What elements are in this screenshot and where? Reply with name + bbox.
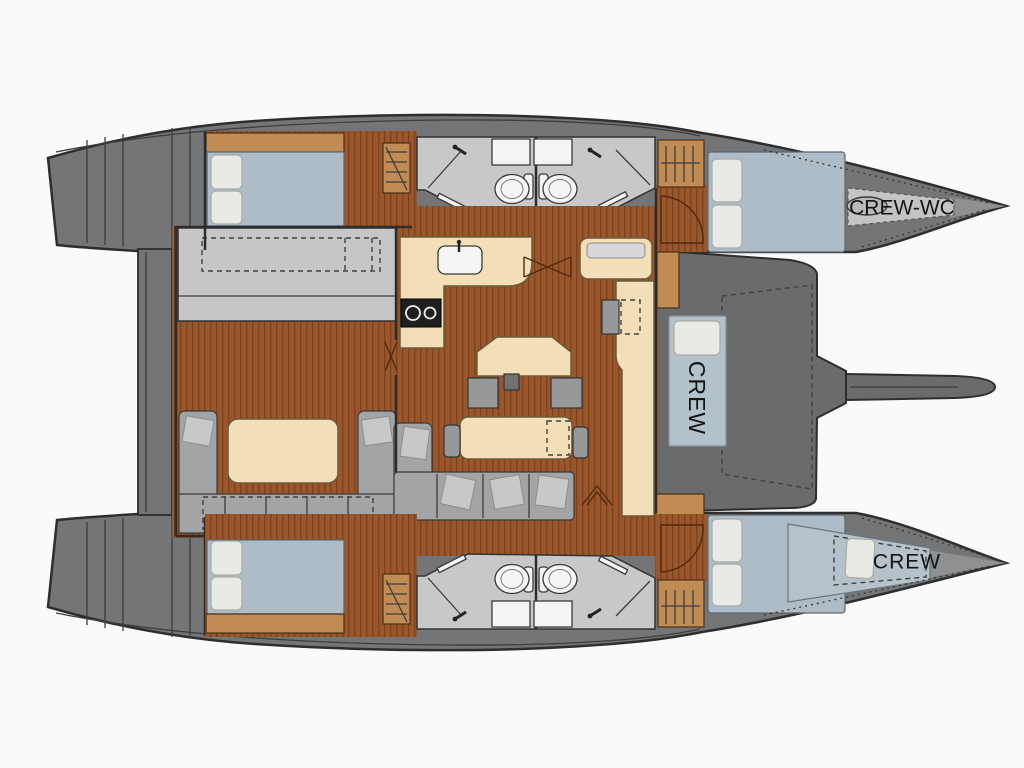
bathroom-bottom xyxy=(417,554,655,629)
shower-fixture-icon xyxy=(588,148,593,153)
wardrobe-icon xyxy=(658,580,704,627)
crew-berth-mid-pillow xyxy=(674,321,720,355)
crew-wc-label: CREW-WC xyxy=(849,197,955,220)
chair xyxy=(573,427,588,458)
bed-pillow xyxy=(211,191,242,224)
salon-floor xyxy=(412,532,658,556)
cabin-floor xyxy=(655,185,707,252)
toilet-icon xyxy=(543,565,577,594)
toilet-icon xyxy=(495,565,529,594)
toilet-icon xyxy=(543,175,577,204)
settee-cushion xyxy=(361,416,392,446)
sofa-cushion xyxy=(400,426,430,459)
shower-fixture-icon xyxy=(453,145,458,150)
stool xyxy=(468,378,498,408)
crew-berth-mid-label: CREW xyxy=(684,361,710,435)
stern-column xyxy=(138,249,172,515)
bed-pillow xyxy=(211,541,242,575)
wardrobe-icon xyxy=(383,143,410,193)
dining-table xyxy=(477,337,571,376)
vanity-sink xyxy=(492,601,530,627)
sofa-cushion xyxy=(535,475,569,509)
bathroom-top xyxy=(417,137,655,212)
berth-platform xyxy=(178,228,396,321)
wardrobe-icon xyxy=(658,140,704,187)
bed-pillow xyxy=(211,577,242,610)
crew-bow-label: CREW xyxy=(873,551,941,574)
shower-fixture-icon xyxy=(588,614,593,619)
salon-floor xyxy=(412,206,658,236)
side-counter xyxy=(616,281,654,516)
toilet-icon xyxy=(495,175,529,204)
sideboard-top xyxy=(587,243,645,258)
shower-fixture-icon xyxy=(453,617,458,622)
vanity-sink xyxy=(492,139,530,165)
faucet-icon xyxy=(457,240,461,244)
settee-cushion xyxy=(182,416,214,446)
bed-pillow xyxy=(712,159,742,202)
bed-pillow xyxy=(845,538,875,578)
bed-pillow xyxy=(211,155,242,189)
deck-locker xyxy=(657,252,679,308)
stool-small xyxy=(504,374,519,390)
chair xyxy=(444,425,460,457)
sofa-cushion xyxy=(440,474,476,510)
sofa-cushion xyxy=(490,475,525,510)
cabin-table xyxy=(228,419,338,483)
stool xyxy=(551,378,582,408)
seat xyxy=(602,300,619,334)
bed-pillow xyxy=(712,519,742,562)
catamaran-floor-plan: CREW xyxy=(0,0,1024,768)
bed-pillow xyxy=(712,205,742,248)
headboard-shelf xyxy=(206,133,344,152)
vanity-sink xyxy=(534,139,572,165)
floor-plan-svg: CREW xyxy=(0,0,1024,768)
vanity-sink xyxy=(534,601,572,627)
headboard-shelf xyxy=(206,614,344,633)
bed-pillow xyxy=(712,564,742,606)
nav-table xyxy=(460,417,572,459)
rim-notch xyxy=(131,103,170,120)
wardrobe-icon xyxy=(383,574,410,624)
